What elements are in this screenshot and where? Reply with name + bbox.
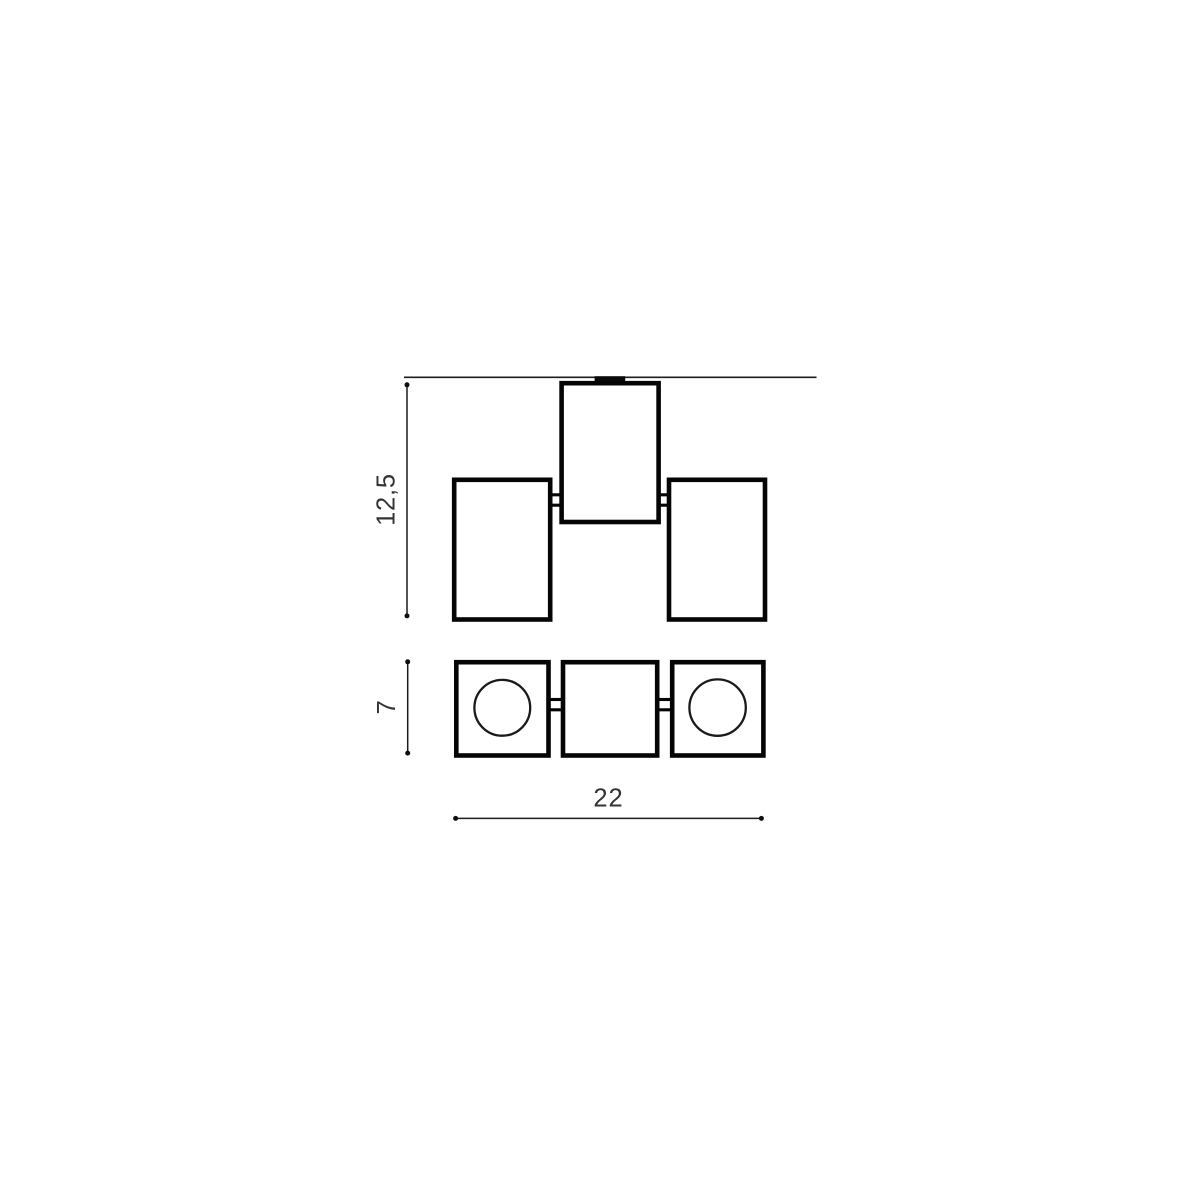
svg-text:22: 22 [593,784,623,812]
svg-text:12,5: 12,5 [373,473,401,526]
svg-text:7: 7 [373,700,401,714]
